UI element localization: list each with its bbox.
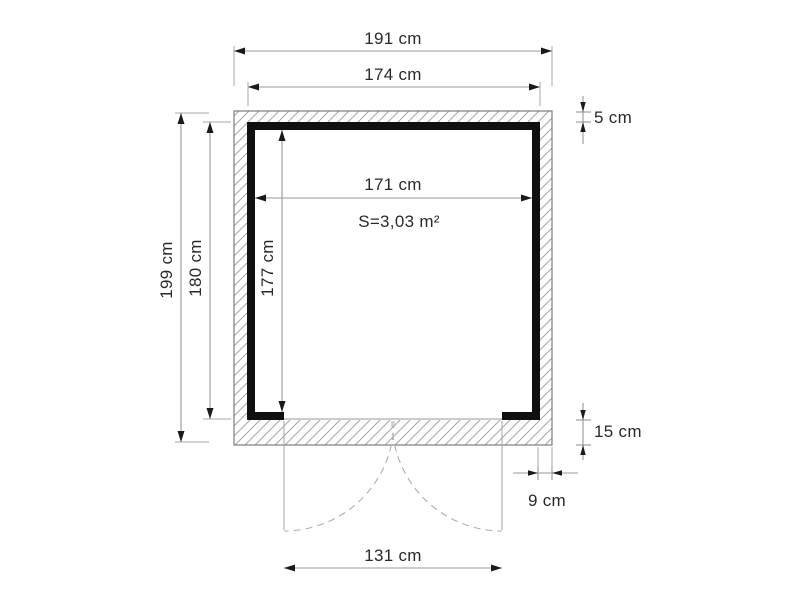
arrow-down	[580, 410, 585, 420]
dim-label-199: 199 cm	[157, 241, 176, 299]
wall-right	[532, 122, 540, 420]
dim-label-15: 15 cm	[594, 422, 642, 441]
dim-label-171: 171 cm	[364, 175, 422, 194]
wall-bottom-left-segment	[247, 412, 284, 420]
area-label: S=3,03 m²	[358, 212, 440, 231]
dim-door-width: 131 cm	[284, 546, 502, 568]
dim-front-band: 15 cm	[576, 403, 642, 460]
dim-label-174: 174 cm	[364, 65, 422, 84]
dim-label-5: 5 cm	[594, 108, 632, 127]
arrow-left	[552, 470, 562, 475]
wall-top	[247, 122, 540, 130]
dim-side-overhang: 9 cm	[513, 447, 578, 510]
floor-plan-canvas: 191 cm 174 cm 199 cm 180 cm 177 cm 171 c…	[0, 0, 800, 600]
arrow-right	[528, 470, 538, 475]
arrow-up	[580, 445, 585, 455]
shed-floor-plan: 191 cm 174 cm 199 cm 180 cm 177 cm 171 c…	[0, 0, 800, 600]
dim-label-131: 131 cm	[364, 546, 422, 565]
dim-body-width: 174 cm	[248, 65, 540, 106]
dim-label-9: 9 cm	[528, 491, 566, 510]
wall-left	[247, 122, 255, 420]
wall-bottom-right-segment	[502, 412, 540, 420]
dim-label-177: 177 cm	[258, 239, 277, 297]
dim-label-191: 191 cm	[364, 29, 422, 48]
dim-wall-thickness: 5 cm	[576, 96, 632, 144]
dim-label-180: 180 cm	[186, 239, 205, 297]
dim-body-depth: 180 cm	[186, 122, 231, 419]
arrow-down	[580, 102, 585, 112]
arrow-up	[580, 122, 585, 132]
floor-interior	[247, 122, 540, 420]
